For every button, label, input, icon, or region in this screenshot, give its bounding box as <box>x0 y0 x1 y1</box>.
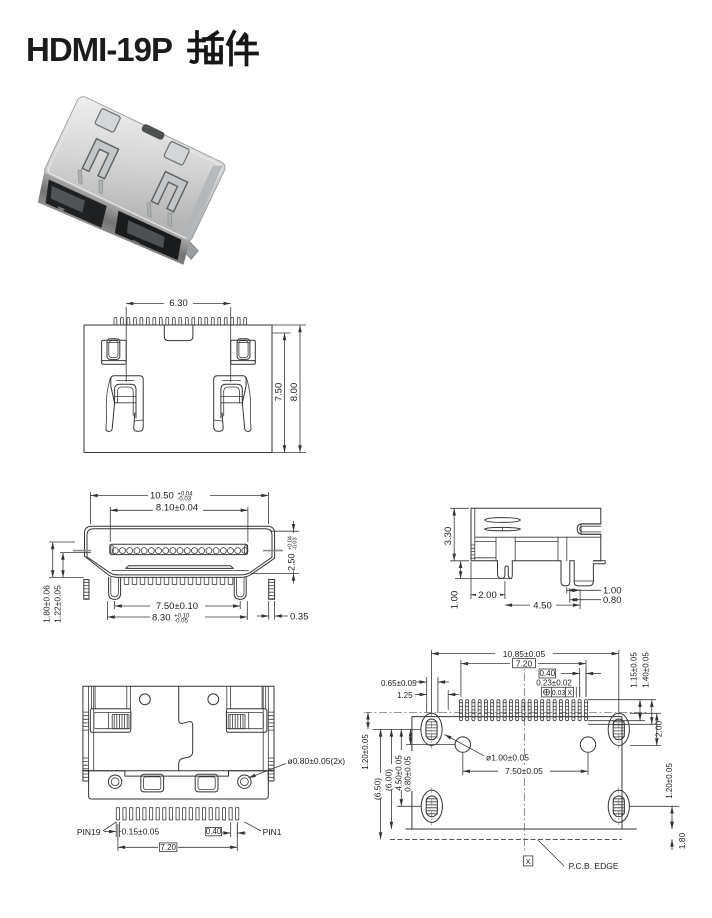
svg-text:HDMI-19P: HDMI-19P <box>26 31 172 68</box>
svg-text:3.30: 3.30 <box>443 527 454 546</box>
svg-text:1.25: 1.25 <box>397 691 413 700</box>
svg-text:4.50: 4.50 <box>533 600 552 611</box>
svg-text:0.15±0.05: 0.15±0.05 <box>122 827 160 837</box>
svg-text:0.40: 0.40 <box>206 827 222 836</box>
svg-text:0.03: 0.03 <box>552 690 566 697</box>
svg-text:0.65±0.05: 0.65±0.05 <box>381 679 417 688</box>
svg-text:8.00: 8.00 <box>289 383 300 402</box>
svg-text:10.50: 10.50 <box>150 491 174 502</box>
svg-text:(6.50): (6.50) <box>373 778 383 800</box>
svg-text:-0.05: -0.05 <box>174 619 188 625</box>
svg-text:7.20: 7.20 <box>516 658 533 668</box>
svg-text:7.50±0.05: 7.50±0.05 <box>505 766 543 776</box>
svg-text:ø1.00±0.05: ø1.00±0.05 <box>486 753 529 763</box>
svg-text:6.30: 6.30 <box>169 298 188 309</box>
svg-text:4.50±0.05: 4.50±0.05 <box>394 755 403 791</box>
svg-text:P.C.B. EDGE: P.C.B. EDGE <box>569 861 619 871</box>
svg-text:0.35: 0.35 <box>290 612 309 623</box>
svg-text:1.22±0.05: 1.22±0.05 <box>53 585 63 623</box>
svg-text:0.23±0.02: 0.23±0.02 <box>536 678 572 687</box>
svg-text:0.80±0.05: 0.80±0.05 <box>404 756 413 792</box>
svg-text:(6.00): (6.00) <box>383 769 393 791</box>
svg-text:-0.03: -0.03 <box>293 537 299 550</box>
svg-text:0.80: 0.80 <box>603 595 622 606</box>
svg-text:7.50: 7.50 <box>274 383 285 402</box>
svg-text:8.30: 8.30 <box>152 613 171 624</box>
svg-text:1.20±0.05: 1.20±0.05 <box>665 763 674 799</box>
svg-text:0.40: 0.40 <box>540 669 556 678</box>
svg-text:1.15±0.05: 1.15±0.05 <box>630 652 639 688</box>
svg-text:8.10±0.04: 8.10±0.04 <box>156 502 198 513</box>
svg-text:1.00: 1.00 <box>449 591 460 610</box>
svg-text:1.80: 1.80 <box>677 832 687 849</box>
svg-text:ø0.80±0.05(2x): ø0.80±0.05(2x) <box>288 756 346 766</box>
svg-text:7.50±0.10: 7.50±0.10 <box>156 601 198 612</box>
svg-text:2.00: 2.00 <box>654 720 664 737</box>
svg-text:7.20: 7.20 <box>160 843 176 852</box>
svg-text:1.40±0.05: 1.40±0.05 <box>642 652 651 688</box>
svg-text:2.00: 2.00 <box>478 590 497 601</box>
svg-text:1.20±0.05: 1.20±0.05 <box>361 734 370 770</box>
svg-text:X: X <box>567 690 572 697</box>
svg-text:2.50: 2.50 <box>287 553 297 571</box>
svg-text:X: X <box>526 857 531 866</box>
svg-text:PIN1: PIN1 <box>263 827 282 837</box>
svg-text:1.80±0.06: 1.80±0.06 <box>42 585 52 623</box>
svg-text:PIN19: PIN19 <box>77 827 101 837</box>
